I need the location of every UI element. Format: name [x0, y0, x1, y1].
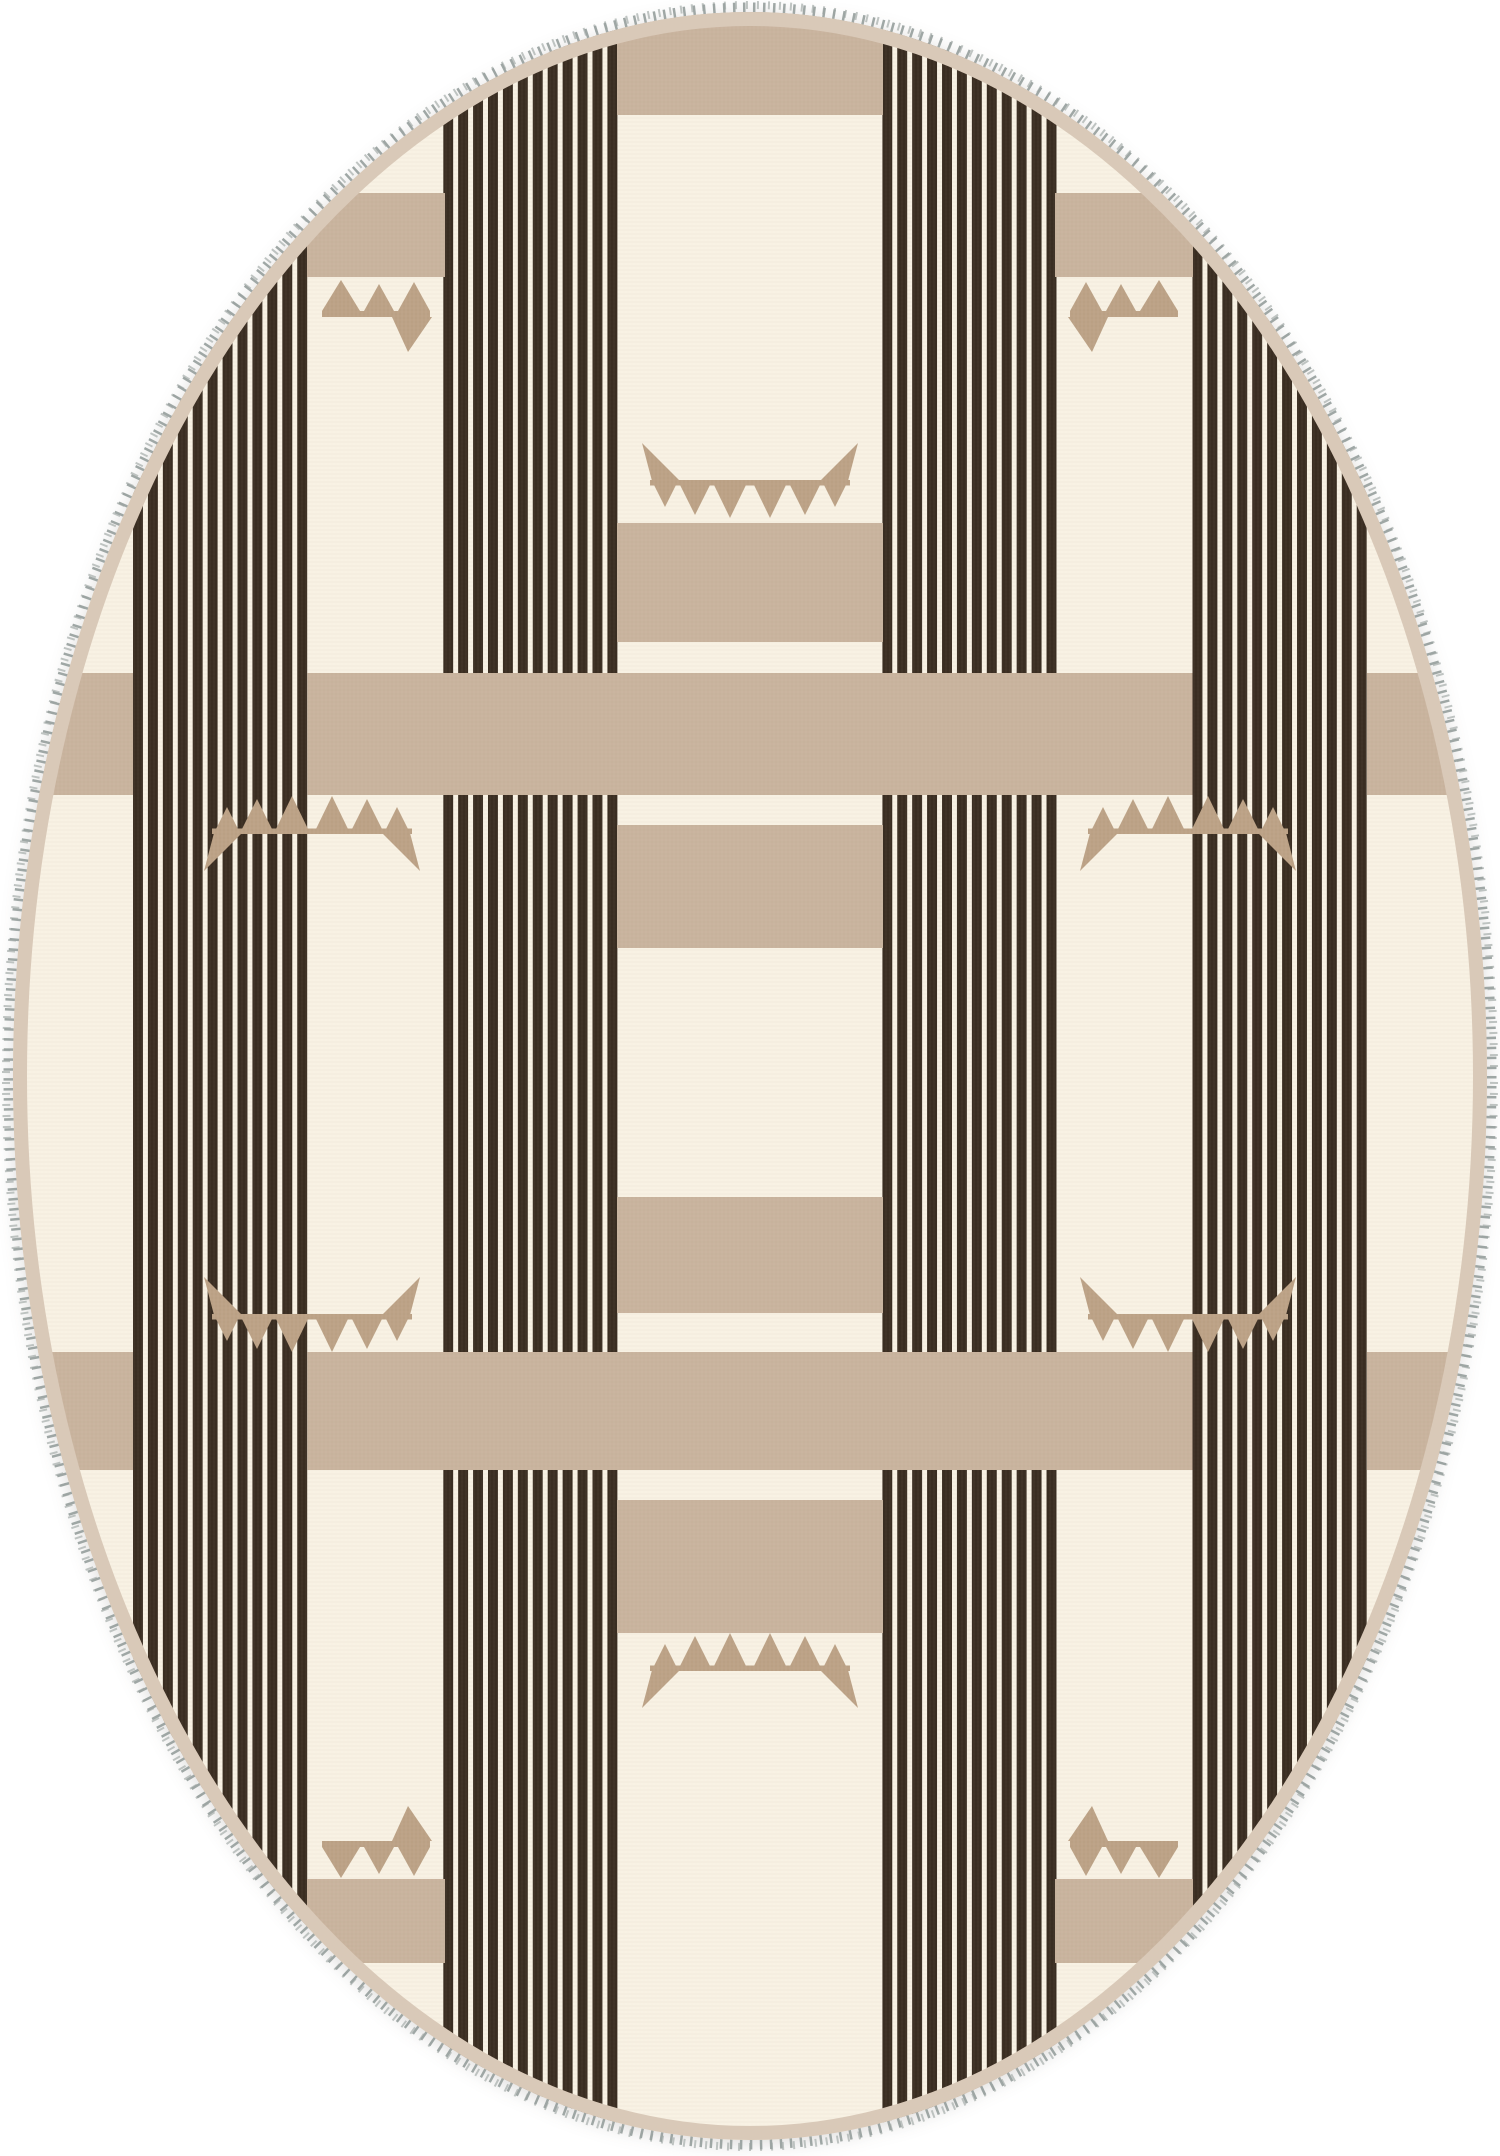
rug-image: [0, 0, 1500, 2156]
rug-product-image: Cream oval flat-weave rug with columns o…: [0, 0, 1500, 2156]
